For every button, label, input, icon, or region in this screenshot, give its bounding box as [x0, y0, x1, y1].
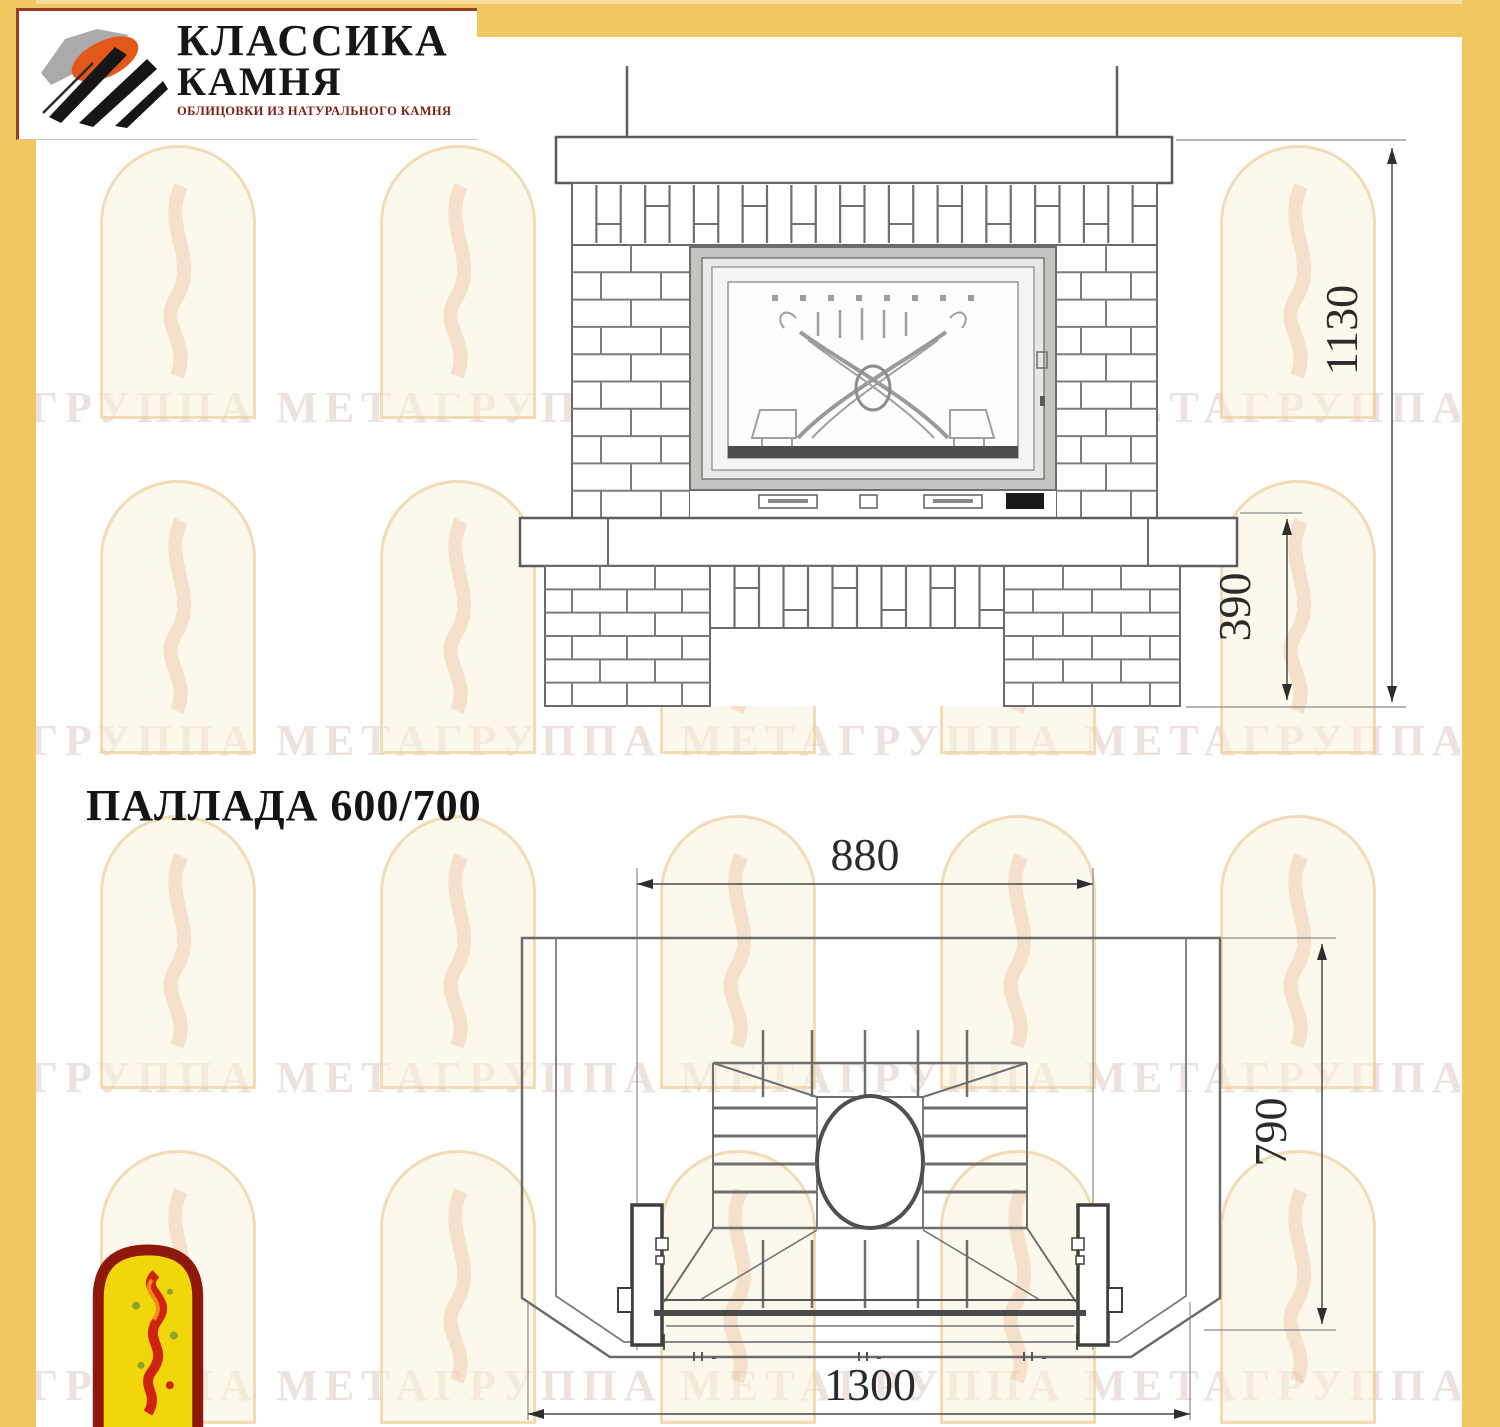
watermark-arch: [100, 480, 256, 754]
brand-logo-card: КЛАССИКА КАМНЯ ОБЛИЦОВКИ ИЗ НАТУРАЛЬНОГО…: [16, 8, 477, 140]
flame-logo-dot: [166, 1381, 174, 1389]
hearth-shelf: [520, 518, 1237, 566]
firebox-under-area: [690, 490, 1056, 518]
glass-air-hole: [884, 295, 890, 301]
svg-text:790: 790: [1245, 1098, 1296, 1167]
brand-tagline: ОБЛИЦОВКИ ИЗ НАТУРАЛЬНОГО КАМНЯ: [177, 104, 473, 119]
plan-view-drawing: 880: [500, 825, 1430, 1427]
svg-text:1130: 1130: [1316, 285, 1367, 375]
flame-logo-dot: [132, 1302, 140, 1310]
watermark-arch-figure: [170, 521, 184, 711]
watermark-arch-figure: [170, 186, 184, 376]
svg-text:880: 880: [831, 829, 900, 880]
page-border-right: [1462, 0, 1500, 1427]
brand-text-block: КЛАССИКА КАМНЯ ОБЛИЦОВКИ ИЗ НАТУРАЛЬНОГО…: [177, 19, 473, 119]
page-border-left: [0, 0, 36, 1427]
watermark-arch-figure: [450, 186, 464, 376]
model-title: ПАЛЛАДА 600/700: [86, 780, 482, 831]
brand-name-line2: КАМНЯ: [177, 63, 473, 101]
glass-air-hole: [856, 295, 862, 301]
watermark-arch-figure: [450, 856, 464, 1046]
firebox-glass: [728, 282, 1018, 458]
brand-name-line1: КЛАССИКА: [177, 19, 473, 63]
watermark-arch-figure: [170, 856, 184, 1046]
glass-air-hole: [940, 295, 946, 301]
wood-niche: [710, 628, 1004, 706]
dimension-depth: 790: [1204, 938, 1336, 1330]
firebox-ash-strip: [728, 446, 1018, 458]
mantel-shelf: [556, 137, 1172, 183]
svg-text:390: 390: [1209, 573, 1260, 642]
firebox-latch: [1040, 396, 1045, 406]
front-elevation-drawing: 1130 390: [500, 55, 1420, 720]
watermark-arch-figure: [450, 521, 464, 711]
flame-window-logo: [86, 1236, 210, 1427]
svg-text:1300: 1300: [824, 1359, 916, 1410]
flame-logo-dot: [170, 1332, 178, 1340]
glass-air-hole: [772, 295, 778, 301]
glass-air-hole: [968, 295, 974, 301]
watermark-arch: [100, 145, 256, 419]
flame-logo-dot: [138, 1362, 145, 1369]
flame-logo-dot: [167, 1289, 173, 1295]
glass-air-hole: [828, 295, 834, 301]
firebox-handle: [1006, 493, 1044, 509]
glass-air-hole: [912, 295, 918, 301]
watermark-arch: [100, 815, 256, 1089]
brand-logo-icon: [35, 23, 171, 129]
watermark-arch-figure: [450, 1191, 464, 1381]
firebox-insert-plan: [654, 1030, 1086, 1326]
glass-air-hole: [800, 295, 806, 301]
